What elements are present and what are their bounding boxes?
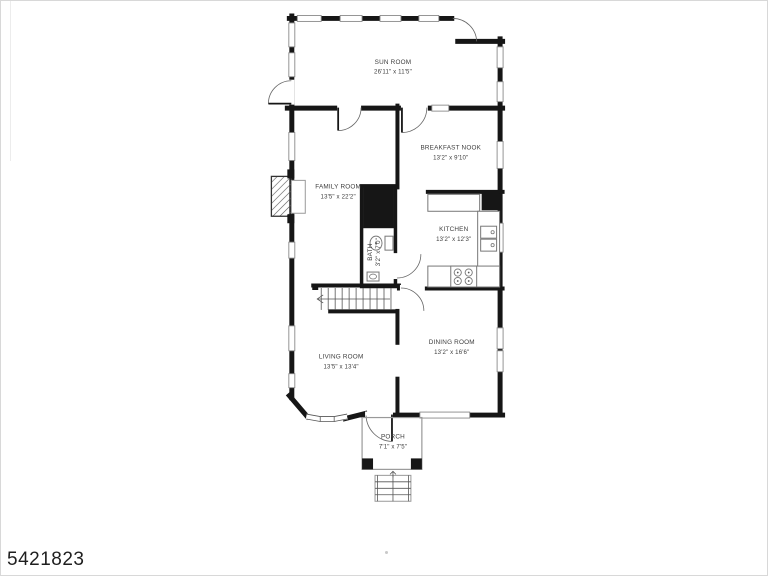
counter-top xyxy=(428,194,480,211)
room-name: PORCH xyxy=(381,433,405,440)
room-kitchen: KITCHEN 13'2" x 12'3" xyxy=(436,226,471,243)
toilet-tank xyxy=(385,236,393,250)
room-name: SUN ROOM xyxy=(375,59,412,66)
room-dims: 13'2" x 9'10" xyxy=(433,155,468,161)
room-name: DINING ROOM xyxy=(429,339,475,346)
newel-post xyxy=(312,284,318,290)
porch-post xyxy=(411,458,422,469)
room-breakfast-nook: BREAKFAST NOOK 13'2" x 9'10" xyxy=(420,144,481,161)
listing-id: 5421823 xyxy=(7,549,84,571)
room-dims: 7'1" x 7'5" xyxy=(379,444,407,450)
closet-block xyxy=(363,187,394,228)
room-name: KITCHEN xyxy=(439,226,469,233)
room-living-room: LIVING ROOM 13'5" x 13'4" xyxy=(319,354,364,371)
room-dims: 3'2" x 7'0" xyxy=(376,238,382,266)
room-dining-room: DINING ROOM 13'2" x 16'6" xyxy=(429,339,475,356)
room-dims: 13'5" x 22'2" xyxy=(321,194,356,200)
steps-up-arrow xyxy=(390,471,396,477)
floor-plan-drawing: SUN ROOM 26'11" x 11'5" BREAKFAST NOOK 1… xyxy=(1,1,767,575)
room-dims: 13'5" x 13'4" xyxy=(324,365,359,371)
porch-steps xyxy=(375,471,411,501)
room-name: FAMILY ROOM xyxy=(315,183,361,190)
room-name: LIVING ROOM xyxy=(319,354,364,361)
room-name: BREAKFAST NOOK xyxy=(420,144,481,151)
room-sun-room: SUN ROOM 26'11" x 11'5" xyxy=(374,59,412,76)
bath-sink-icon xyxy=(367,272,379,281)
range-icon xyxy=(451,266,477,287)
room-family-room: FAMILY ROOM 13'5" x 22'2" xyxy=(315,183,361,200)
room-dims: 26'11" x 11'5" xyxy=(374,70,412,76)
fireplace-icon xyxy=(271,169,305,223)
scan-artifact-dot xyxy=(385,551,388,554)
refrigerator-icon xyxy=(482,193,500,210)
porch-post xyxy=(362,458,373,469)
kitchen-sink-icon xyxy=(481,226,497,251)
room-porch: PORCH 7'1" x 7'5" xyxy=(379,433,407,450)
room-name: BATH xyxy=(367,243,374,260)
floor-plan-image: SUN ROOM 26'11" x 11'5" BREAKFAST NOOK 1… xyxy=(0,0,768,576)
room-dims: 13'2" x 16'6" xyxy=(434,350,469,356)
room-dims: 13'2" x 12'3" xyxy=(436,237,471,243)
bay-window xyxy=(306,414,347,421)
